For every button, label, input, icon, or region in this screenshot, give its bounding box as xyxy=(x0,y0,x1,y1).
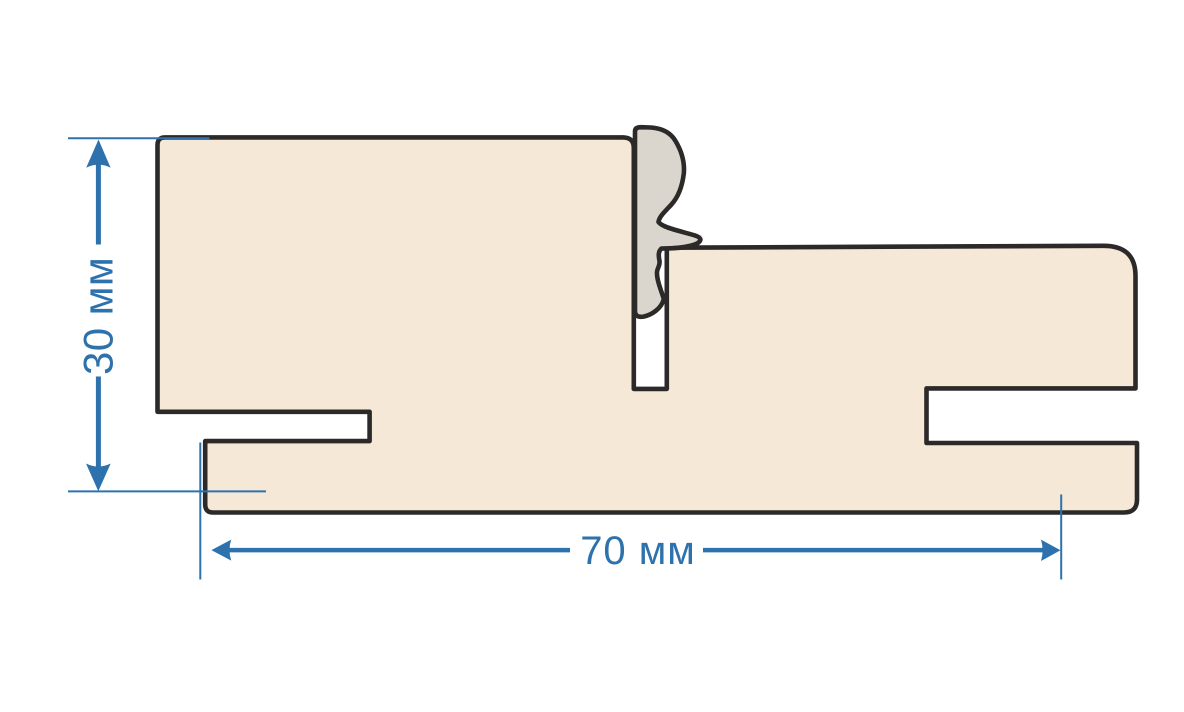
svg-text:70 мм: 70 мм xyxy=(580,529,696,573)
svg-text:30 мм: 30 мм xyxy=(75,257,122,375)
